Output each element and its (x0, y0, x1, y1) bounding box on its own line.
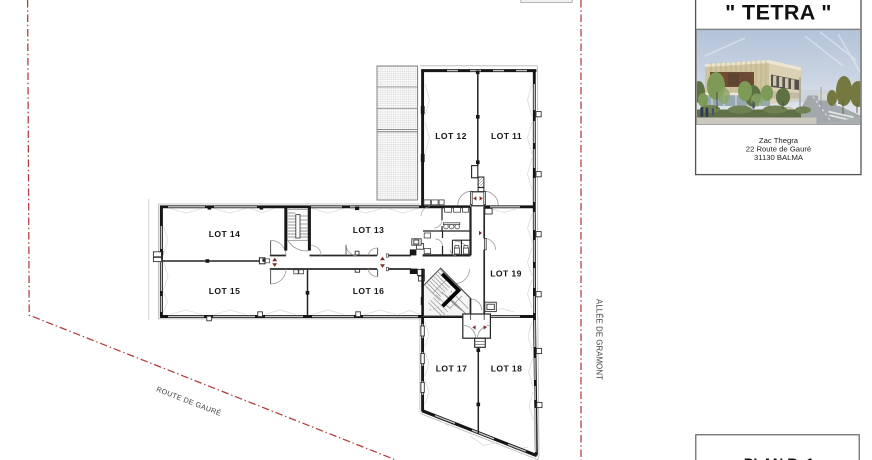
svg-text:LOT 15: LOT 15 (209, 286, 241, 296)
svg-text:LOT 12: LOT 12 (435, 131, 467, 141)
svg-text:LOT 18: LOT 18 (491, 364, 523, 374)
svg-text:LOT 19: LOT 19 (490, 269, 522, 279)
svg-text:LOT 16: LOT 16 (353, 286, 385, 296)
svg-text:LOT 14: LOT 14 (209, 229, 241, 239)
svg-text:31130 BALMA: 31130 BALMA (754, 153, 804, 162)
svg-text:PLAN R+1: PLAN R+1 (744, 457, 815, 460)
svg-text:LOT 13: LOT 13 (353, 225, 385, 235)
svg-text:" TETRA ": " TETRA " (725, 1, 832, 25)
svg-text:LOT 11: LOT 11 (491, 131, 522, 141)
svg-text:ALLÉE DE GRAMONT: ALLÉE DE GRAMONT (595, 299, 604, 380)
svg-text:LOT 17: LOT 17 (436, 364, 468, 374)
